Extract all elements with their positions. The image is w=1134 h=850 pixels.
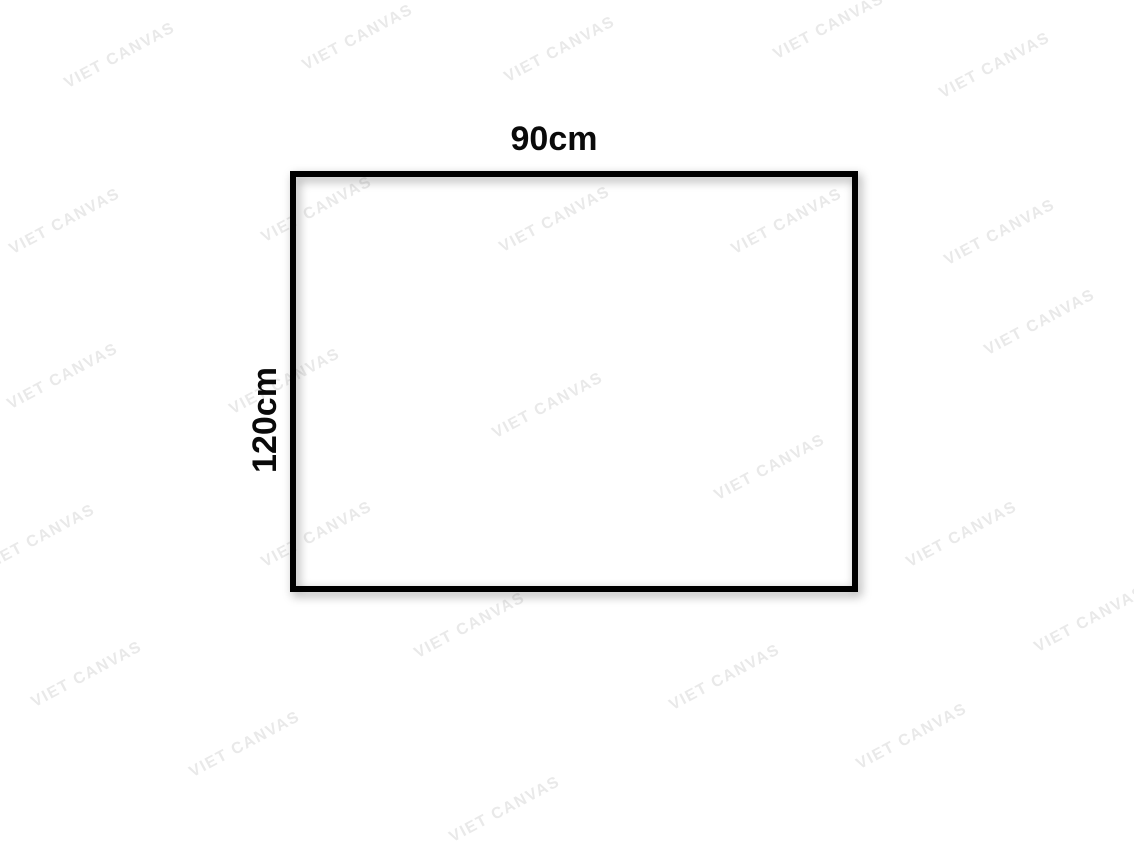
watermark-text: VIET CANVAS xyxy=(904,498,1021,572)
watermark-text: VIET CANVAS xyxy=(62,19,179,93)
watermark-text: VIET CANVAS xyxy=(0,501,98,575)
watermark-text: VIET CANVAS xyxy=(447,773,564,847)
watermark-text: VIET CANVAS xyxy=(942,196,1059,270)
width-dimension-label: 90cm xyxy=(270,122,838,156)
watermark-text: VIET CANVAS xyxy=(771,0,888,64)
watermark-text: VIET CANVAS xyxy=(937,29,1054,103)
watermark-text: VIET CANVAS xyxy=(854,700,971,774)
watermark-text: VIET CANVAS xyxy=(29,638,146,712)
watermark-text: VIET CANVAS xyxy=(982,286,1099,360)
height-dimension-label: 120cm xyxy=(248,367,282,473)
watermark-text: VIET CANVAS xyxy=(502,13,619,87)
canvas-size-mockup: VIET CANVAS VIET CANVAS VIET CANVAS VIET… xyxy=(0,0,1134,850)
watermark-text: VIET CANVAS xyxy=(5,340,122,414)
canvas-frame-rectangle xyxy=(290,171,858,592)
watermark-text: VIET CANVAS xyxy=(412,589,529,663)
watermark-text: VIET CANVAS xyxy=(667,641,784,715)
watermark-text: VIET CANVAS xyxy=(1032,583,1134,657)
watermark-text: VIET CANVAS xyxy=(300,1,417,75)
watermark-text: VIET CANVAS xyxy=(7,185,124,259)
watermark-text: VIET CANVAS xyxy=(187,708,304,782)
